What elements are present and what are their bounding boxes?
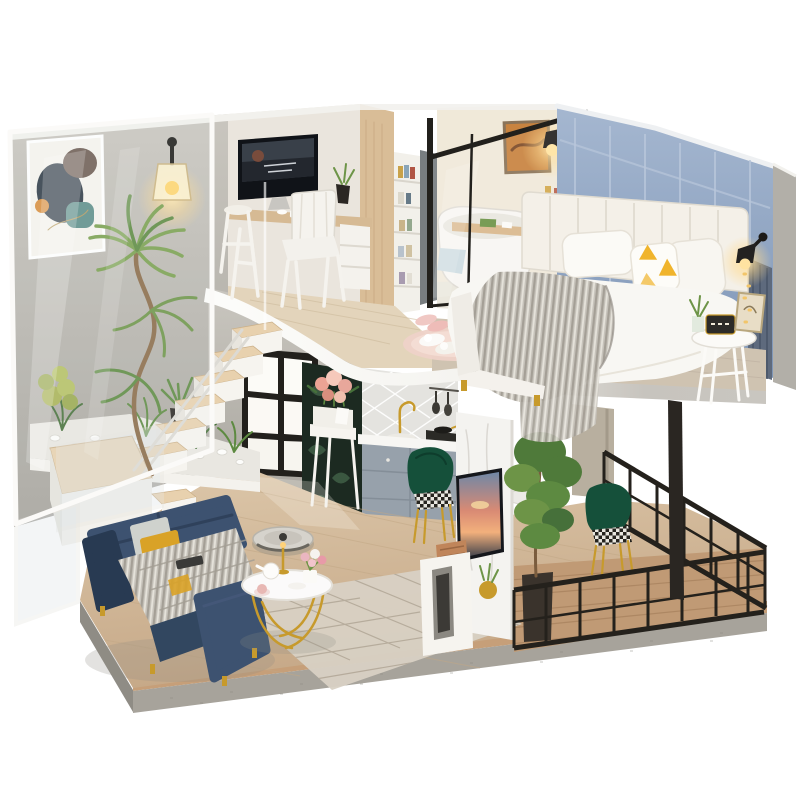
right-wall-edge xyxy=(773,164,796,390)
pink-cup xyxy=(257,584,267,594)
dollhouse-illustration: Miniature DIY dollhouse diorama: a two-s… xyxy=(0,0,800,800)
bath-top-trim xyxy=(360,104,557,110)
dollhouse-product-photo: Miniature DIY dollhouse diorama: a two-s… xyxy=(0,0,800,800)
gold-pot xyxy=(479,581,497,599)
picture-frame xyxy=(735,293,765,333)
alarm-clock xyxy=(706,315,735,334)
balcony-post xyxy=(668,400,684,600)
teapot xyxy=(263,563,279,579)
desk-drawers xyxy=(340,224,370,290)
